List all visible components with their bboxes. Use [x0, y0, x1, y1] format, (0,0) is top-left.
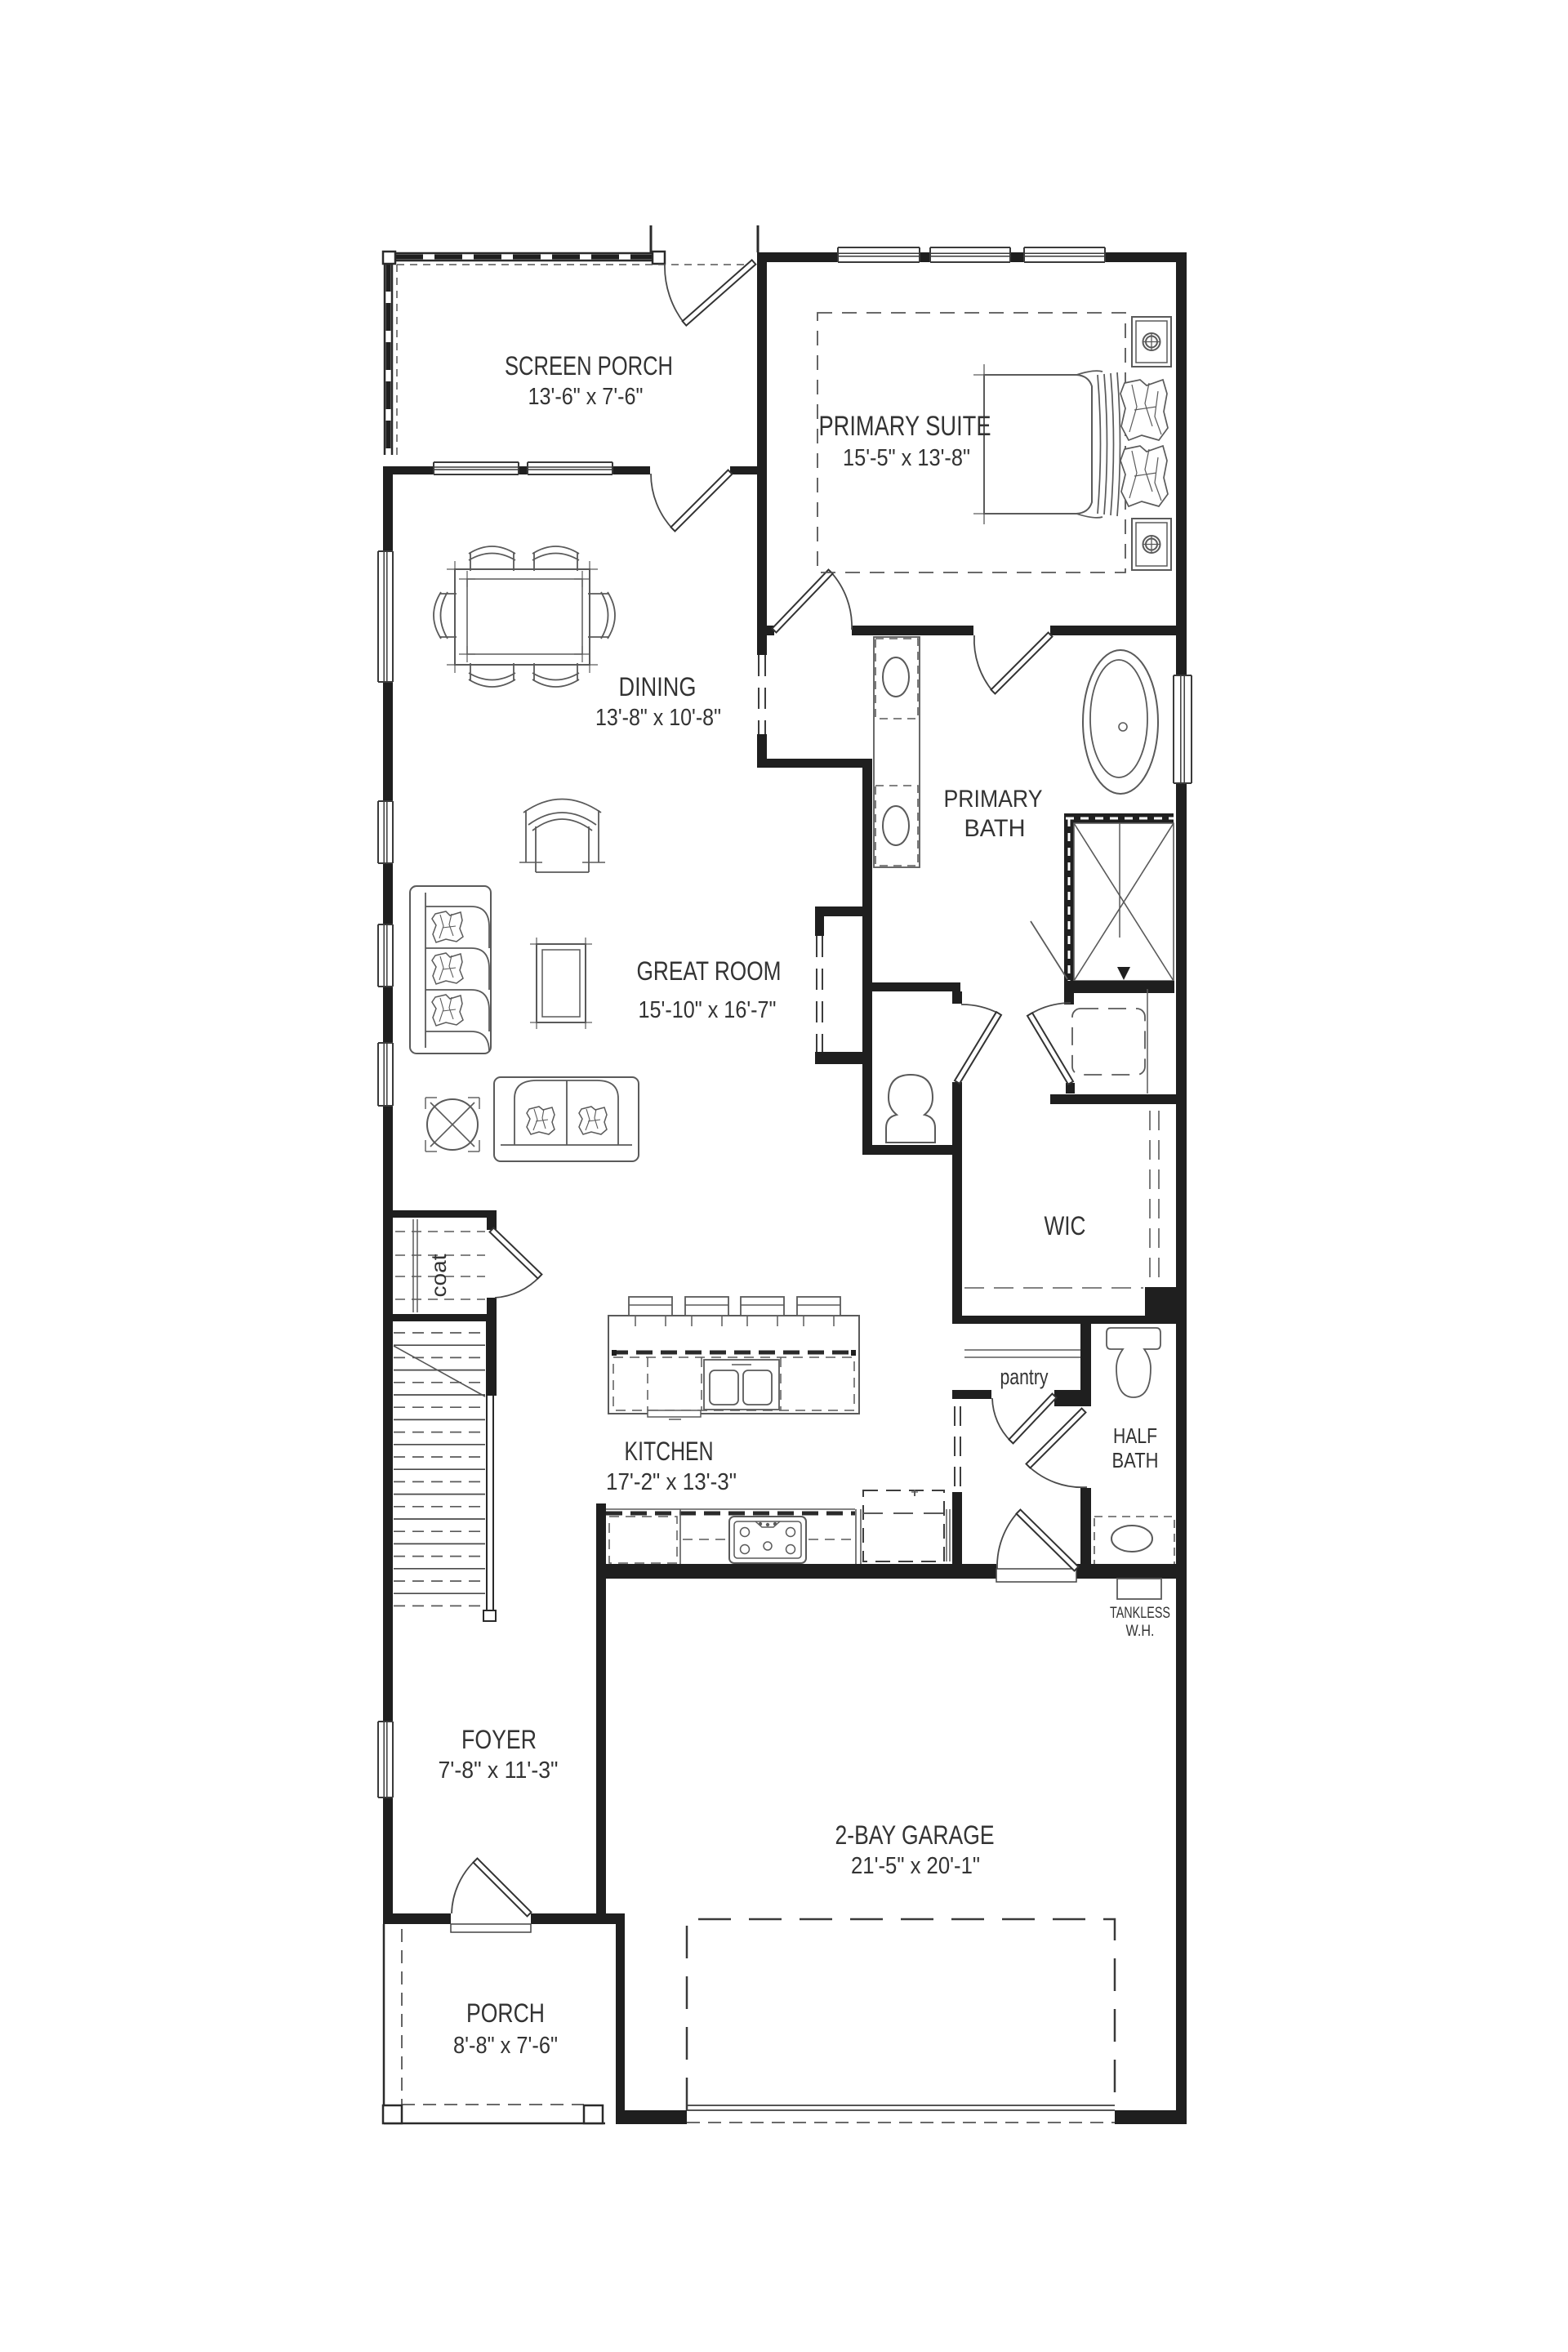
- svg-text:PRIMARY SUITE: PRIMARY SUITE: [819, 411, 991, 442]
- svg-text:DINING: DINING: [619, 672, 697, 702]
- svg-text:SCREEN PORCH: SCREEN PORCH: [505, 351, 673, 381]
- svg-text:WIC: WIC: [1045, 1211, 1086, 1241]
- svg-text:HALF: HALF: [1113, 1423, 1157, 1448]
- svg-text:BATH: BATH: [964, 815, 1026, 842]
- svg-text:PRIMARY: PRIMARY: [944, 786, 1043, 813]
- svg-text:7'-8" x 11'-3": 7'-8" x 11'-3": [439, 1757, 559, 1784]
- svg-text:KITCHEN: KITCHEN: [625, 1437, 714, 1466]
- svg-text:TANKLESS: TANKLESS: [1110, 1605, 1170, 1622]
- svg-text:W.H.: W.H.: [1126, 1623, 1155, 1640]
- svg-text:PORCH: PORCH: [466, 1998, 545, 2028]
- svg-text:FOYER: FOYER: [461, 1725, 537, 1754]
- svg-text:21'-5" x 20'-1": 21'-5" x 20'-1": [851, 1853, 980, 1879]
- svg-text:15'-5" x 13'-8": 15'-5" x 13'-8": [843, 445, 970, 471]
- svg-text:coat: coat: [426, 1254, 451, 1298]
- svg-text:2-BAY GARAGE: 2-BAY GARAGE: [835, 1820, 995, 1850]
- svg-text:17'-2" x 13'-3": 17'-2" x 13'-3": [606, 1469, 737, 1495]
- svg-text:GREAT ROOM: GREAT ROOM: [637, 956, 782, 986]
- svg-text:pantry: pantry: [1000, 1365, 1049, 1389]
- svg-text:13'-6" x 7'-6": 13'-6" x 7'-6": [528, 384, 644, 410]
- svg-text:8'-8" x 7'-6": 8'-8" x 7'-6": [453, 2033, 558, 2059]
- svg-text:15'-10" x 16'-7": 15'-10" x 16'-7": [639, 997, 777, 1023]
- svg-text:BATH: BATH: [1112, 1448, 1159, 1472]
- svg-text:13'-8" x 10'-8": 13'-8" x 10'-8": [595, 705, 721, 731]
